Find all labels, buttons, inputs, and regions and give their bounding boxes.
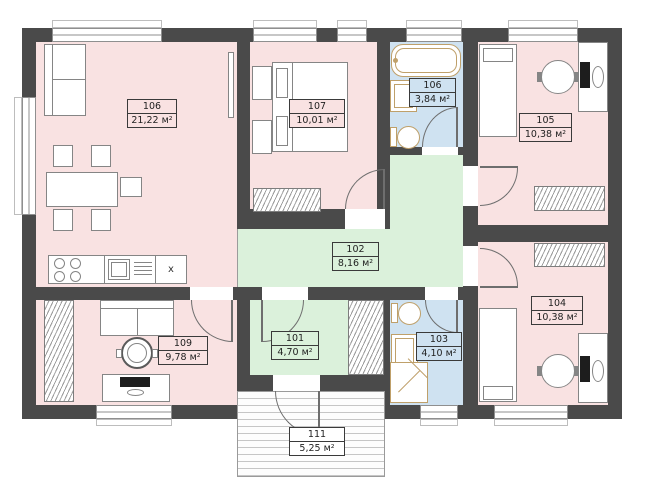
pot-lid: [127, 343, 147, 363]
pillow: [276, 68, 288, 98]
window-bedroom-107: [253, 28, 317, 42]
door-leaf-105: [480, 166, 518, 168]
floor-plan: x 106 21,22: [0, 0, 654, 502]
window-sill: [96, 419, 172, 426]
chair: [53, 209, 73, 231]
label-room-107: 107 10,01 м²: [289, 99, 345, 128]
room-area: 5,25 м²: [290, 442, 344, 455]
label-porch-111: 111 5,25 м²: [289, 427, 345, 456]
window-bathroom-top: [406, 28, 462, 42]
window-bedroom-107-small: [337, 28, 367, 42]
room-area: 4,70 м²: [272, 346, 318, 359]
pillow: [483, 48, 513, 62]
wardrobe-104: [534, 243, 605, 267]
window-sill: [508, 20, 578, 28]
chair: [91, 209, 111, 231]
room-area: 8,16 м²: [333, 257, 378, 270]
window-sill: [14, 97, 22, 215]
room-number: 107: [290, 100, 344, 114]
window-living-left: [22, 97, 36, 215]
room-area: 21,22 м²: [128, 114, 176, 127]
room-area: 3,84 м²: [410, 93, 455, 106]
door-leaf-bathroom-top: [456, 107, 458, 147]
toilet-tank: [390, 127, 397, 147]
room-number: 111: [290, 428, 344, 442]
bathtub-inner: [395, 48, 457, 73]
sofa-cushion-line: [53, 79, 85, 80]
drainboard-line: [134, 266, 152, 267]
wardrobe-107: [253, 188, 321, 212]
desk-speaker: [592, 66, 604, 88]
stove-burner: [54, 271, 65, 282]
door-leaf-101: [261, 300, 263, 342]
door-opening-entry: [273, 375, 320, 391]
monitor-104: [580, 356, 590, 382]
counter-divider: [104, 256, 105, 283]
dining-table: [46, 172, 118, 207]
room-area: 10,01 м²: [290, 114, 344, 127]
stove-burner: [70, 258, 81, 269]
monitor-105: [580, 62, 590, 88]
label-room-105: 105 10,38 м²: [519, 113, 572, 142]
window-bedroom-104: [494, 405, 568, 419]
door-opening-109: [190, 287, 233, 300]
sofa-cushion-line: [137, 309, 138, 335]
room-number: 106: [410, 79, 455, 93]
hallway-arm: [390, 155, 463, 229]
drainboard-line: [134, 274, 152, 275]
door-opening-bathroom-top: [422, 147, 458, 155]
room-area: 4,10 м²: [417, 347, 461, 360]
label-room-109: 109 9,78 м²: [158, 336, 208, 365]
door-opening-101: [262, 287, 308, 300]
room-area: 9,78 м²: [159, 351, 207, 364]
toilet-tank: [391, 303, 398, 323]
room-number: 102: [333, 243, 378, 257]
sofa-back-line: [52, 45, 53, 115]
nightstand: [252, 120, 272, 154]
closet-hatch: [348, 300, 384, 375]
door-leaf-104: [480, 286, 518, 288]
room-number: 109: [159, 337, 207, 351]
kitchen-sink-basin: [111, 262, 127, 277]
window-sill: [420, 419, 458, 426]
door-leaf-107: [383, 169, 385, 209]
drainboard-line: [134, 270, 152, 271]
window-sill: [52, 20, 162, 28]
room-number: 106: [128, 100, 176, 114]
door-leaf-103: [456, 300, 458, 333]
label-hallway-102: 102 8,16 м²: [332, 242, 379, 271]
room-number: 105: [520, 114, 571, 128]
chair-armrest: [574, 72, 579, 82]
window-living: [52, 28, 162, 42]
window-sill: [253, 20, 317, 28]
wardrobe-109: [44, 300, 74, 402]
office-chair-105: [541, 60, 575, 94]
door-opening-105: [463, 166, 478, 206]
corner-shower: [390, 362, 428, 403]
label-bathroom-top: 106 3,84 м²: [409, 78, 456, 107]
toilet-bowl: [397, 126, 420, 149]
window-bedroom-105: [508, 28, 578, 42]
stove-burner: [54, 258, 65, 269]
pot-handle: [116, 349, 122, 358]
bathtub-faucet: [393, 58, 398, 63]
pillow: [483, 386, 513, 400]
kitchen-cabinet-x: x: [155, 255, 187, 284]
room-area: 10,38 м²: [532, 311, 582, 324]
chair-armrest: [537, 366, 542, 376]
drainboard-line: [134, 262, 152, 263]
window-bathroom-103: [420, 405, 458, 419]
window-sill: [337, 20, 367, 28]
living-hall-boundary-line: [237, 229, 238, 287]
chair: [53, 145, 73, 167]
tv-base: [127, 389, 144, 396]
stove-burner: [70, 271, 81, 282]
label-entry-101: 101 4,70 м²: [271, 331, 319, 360]
pillow: [276, 116, 288, 146]
window-sill: [406, 20, 462, 28]
nightstand: [252, 66, 272, 100]
room-number: 101: [272, 332, 318, 346]
room-area: 10,38 м²: [520, 128, 571, 141]
tv: [120, 377, 150, 387]
chair: [120, 177, 142, 197]
office-chair-104: [541, 354, 575, 388]
door-opening-103: [425, 287, 458, 300]
chair-armrest: [537, 72, 542, 82]
chair: [91, 145, 111, 167]
window-sill: [494, 419, 568, 426]
wardrobe-105: [534, 186, 605, 211]
desk-speaker: [592, 360, 604, 382]
label-bathroom-103: 103 4,10 м²: [416, 332, 462, 361]
door-opening-107: [345, 209, 385, 229]
room-number: 104: [532, 297, 582, 311]
window-room-109: [96, 405, 172, 419]
toilet-bowl: [398, 302, 421, 325]
label-room-106: 106 21,22 м²: [127, 99, 177, 128]
open-door-leaf-wall: [228, 52, 234, 118]
room-number: 103: [417, 333, 461, 347]
label-room-104: 104 10,38 м²: [531, 296, 583, 325]
door-leaf-109: [231, 300, 233, 342]
sofa-living: [44, 44, 86, 116]
door-opening-104: [463, 246, 478, 286]
